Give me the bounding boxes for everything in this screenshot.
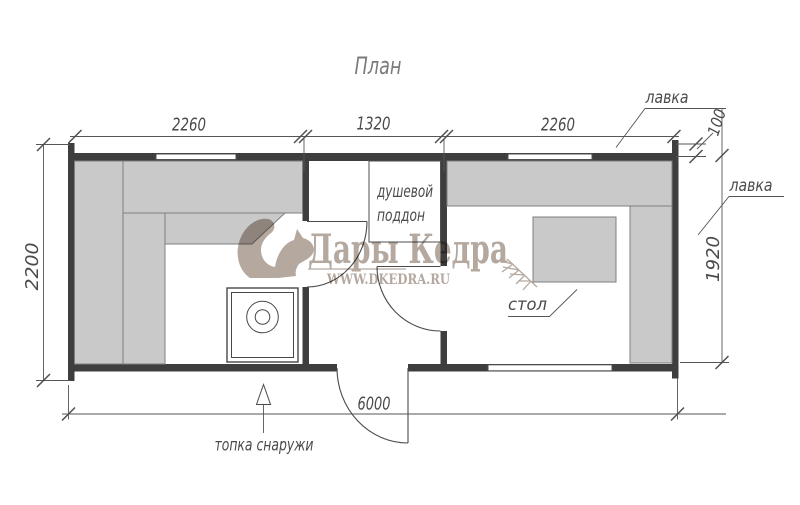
dim-shower-room-width: 1320 bbox=[357, 114, 391, 135]
dimension-left: 2200 bbox=[22, 138, 70, 387]
stove-body bbox=[227, 288, 298, 362]
furnace-arrow-icon bbox=[257, 385, 271, 405]
floor-plan-canvas: План душевой поддон bbox=[0, 0, 800, 505]
wall-partition-left-lower bbox=[303, 287, 310, 364]
dim-wall-offset: 100 bbox=[704, 107, 730, 139]
bench-steam-left-wall bbox=[75, 161, 124, 364]
dimension-bottom: 6000 bbox=[62, 379, 726, 421]
bench-steam-second-tier bbox=[123, 213, 165, 364]
wall-bottom-left bbox=[68, 364, 337, 372]
bench-rest-right-wall bbox=[630, 206, 672, 363]
page-title: План bbox=[355, 52, 402, 80]
watermark-brand: Дары Кедра bbox=[308, 226, 508, 273]
label-table: стол bbox=[508, 295, 547, 315]
window-top-right bbox=[508, 154, 592, 160]
dim-left-room-width: 2260 bbox=[172, 115, 206, 136]
dim-building-depth: 2200 bbox=[22, 243, 43, 291]
shower-tray-label-line1: душевой bbox=[376, 182, 433, 202]
label-bench-top: лавка bbox=[645, 88, 689, 108]
bench-steam-top bbox=[123, 161, 303, 213]
table bbox=[533, 217, 616, 282]
watermark-url: WWW.DKEDRA.RU bbox=[326, 272, 450, 288]
wall-right bbox=[672, 140, 679, 379]
dim-building-length: 6000 bbox=[358, 394, 391, 415]
label-bench-side: лавка bbox=[729, 176, 773, 196]
stove bbox=[227, 288, 298, 362]
leader-bench-side bbox=[698, 197, 784, 236]
label-furnace: топка снаружи bbox=[215, 436, 314, 456]
shower-tray-label-line2: поддон bbox=[377, 206, 425, 226]
dim-rest-room-width: 2260 bbox=[541, 115, 575, 136]
wall-partition-left-upper bbox=[303, 161, 310, 221]
window-bottom-right bbox=[488, 365, 612, 371]
window-top-left bbox=[156, 154, 236, 160]
floor-plan-drawing: План душевой поддон bbox=[0, 0, 800, 505]
squirrel-icon bbox=[238, 219, 314, 278]
wall-partition-right-lower bbox=[441, 331, 448, 364]
wall-left bbox=[68, 143, 75, 381]
dim-rest-room-depth: 1920 bbox=[703, 236, 724, 282]
watermark: Дары Кедра WWW.DKEDRA.RU bbox=[238, 219, 537, 290]
dimension-right: 1920 100 bbox=[676, 107, 730, 369]
bench-rest-top bbox=[447, 161, 672, 206]
